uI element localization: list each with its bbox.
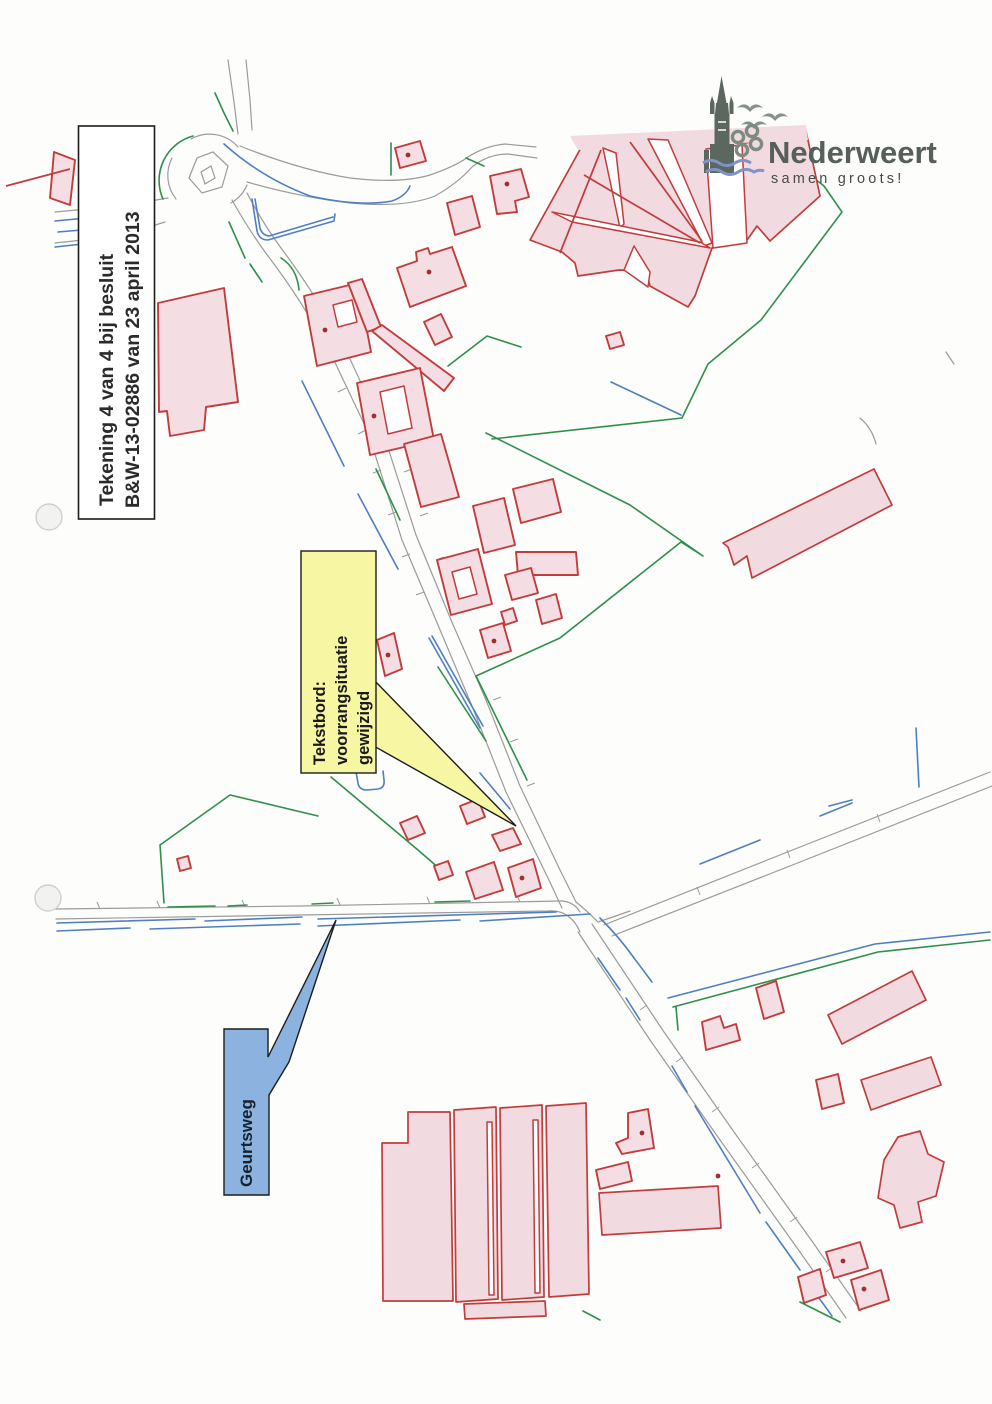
svg-text:gewijzigd: gewijzigd [355, 691, 373, 765]
svg-text:Geurtsweg: Geurtsweg [237, 1099, 256, 1187]
svg-text:voorrangsituatie: voorrangsituatie [333, 636, 351, 765]
svg-text:Tekening 4 van 4 bij besluit: Tekening 4 van 4 bij besluit [96, 253, 118, 506]
svg-text:B&W-13-02886 van 23 april 2013: B&W-13-02886 van 23 april 2013 [122, 211, 144, 508]
svg-text:Nederweert: Nederweert [768, 135, 937, 170]
svg-text:Tekstbord:: Tekstbord: [311, 681, 329, 765]
svg-text:samen groots!: samen groots! [771, 171, 904, 187]
